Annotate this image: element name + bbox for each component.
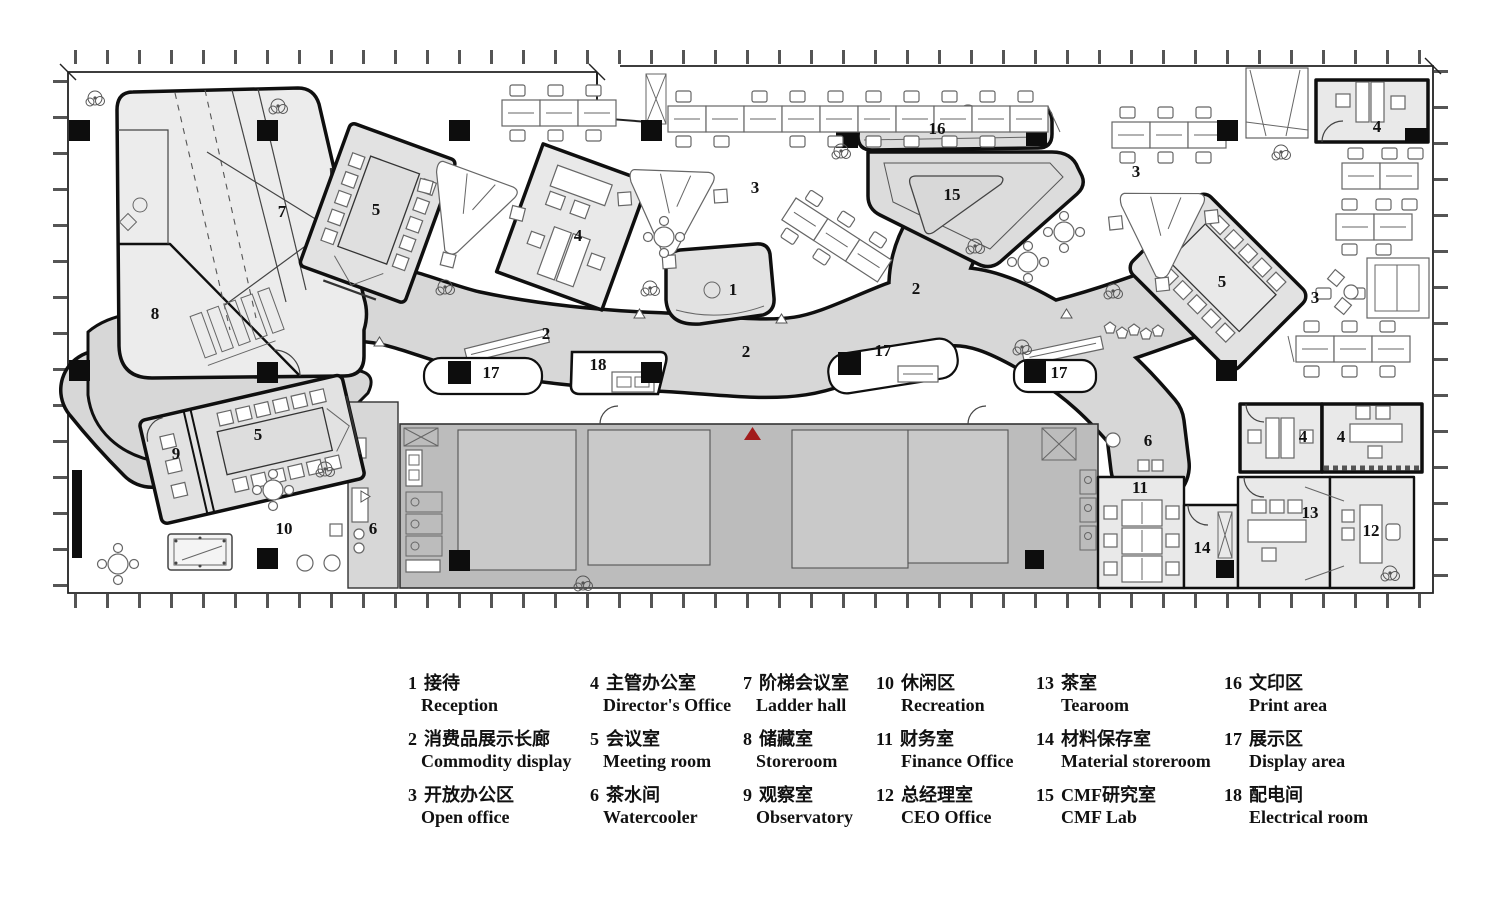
desk-bench — [1112, 107, 1226, 163]
legend-entry-english: Open office — [421, 806, 590, 828]
pool-table — [168, 534, 232, 570]
legend-entry-title: 6茶水间 — [590, 784, 743, 806]
solid-wall-segment — [72, 470, 82, 558]
legend-entry-title: 12总经理室 — [876, 784, 1036, 806]
legend-entry-number: 11 — [876, 729, 893, 749]
legend-entry-number: 12 — [876, 785, 894, 805]
room-label-3: 3 — [1132, 162, 1141, 181]
room-label-5: 5 — [372, 200, 381, 219]
entry-stair — [646, 74, 666, 124]
legend-entry-number: 6 — [590, 785, 599, 805]
room-label-18: 18 — [590, 355, 607, 374]
legend-entry-english: Ladder hall — [756, 694, 876, 716]
service-core — [400, 406, 1098, 588]
legend-entry-16: 16文印区Print area — [1224, 672, 1398, 716]
core-room — [908, 430, 1008, 563]
legend-entry-number: 9 — [743, 785, 752, 805]
legend-entry-number: 1 — [408, 673, 417, 693]
legend-entry-english: Print area — [1249, 694, 1398, 716]
legend-entry-3: 3开放办公区Open office — [408, 784, 590, 828]
legend-entry-title: 9观察室 — [743, 784, 876, 806]
legend-entry-8: 8储藏室Storeroom — [743, 728, 876, 772]
legend-entry-title: 16文印区 — [1224, 672, 1398, 694]
legend-entry-15: 15CMF研究室CMF Lab — [1036, 784, 1224, 828]
legend-entry-number: 15 — [1036, 785, 1054, 805]
legend-entry-18: 18配电间Electrical room — [1224, 784, 1398, 828]
legend-entry-number: 8 — [743, 729, 752, 749]
legend-entry-english: Commodity display — [421, 750, 590, 772]
legend-entry-english: Observatory — [756, 806, 876, 828]
legend-entry-english: Finance Office — [901, 750, 1036, 772]
legend-entry-number: 10 — [876, 673, 894, 693]
legend-entry-number: 3 — [408, 785, 417, 805]
desk-bench — [1342, 148, 1423, 189]
floor-plan-page: { "plan": { "marker": {"name": "entrance… — [0, 0, 1500, 907]
room-label-14: 14 — [1194, 538, 1212, 557]
legend-entry-title: 17展示区 — [1224, 728, 1398, 750]
legend-entry-title: 3开放办公区 — [408, 784, 590, 806]
room-label-9: 9 — [172, 444, 181, 463]
legend-column: 13茶室Tearoom14材料保存室Material storeroom15CM… — [1036, 672, 1224, 840]
core-room — [792, 430, 908, 568]
room-label-11: 11 — [1132, 478, 1148, 497]
legend-entry-5: 5会议室Meeting room — [590, 728, 743, 772]
core-room — [588, 430, 710, 565]
legend-entry-9: 9观察室Observatory — [743, 784, 876, 828]
room-material-storeroom-14 — [1184, 505, 1238, 588]
room-label-4: 4 — [1337, 427, 1346, 446]
room-label-15: 15 — [944, 185, 961, 204]
legend-entry-chinese: 消费品展示长廊 — [424, 729, 550, 749]
room-label-6: 6 — [369, 519, 378, 538]
legend-entry-english: Meeting room — [603, 750, 743, 772]
room-label-10: 10 — [276, 519, 293, 538]
legend-entry-number: 7 — [743, 673, 752, 693]
legend-entry-chinese: CMF研究室 — [1061, 785, 1156, 805]
legend-entry-title: 5会议室 — [590, 728, 743, 750]
round-table — [98, 544, 139, 585]
legend-entry-1: 1接待Reception — [408, 672, 590, 716]
legend-column: 4主管办公室Director's Office5会议室Meeting room6… — [590, 672, 743, 840]
legend-entry-chinese: 开放办公区 — [424, 785, 514, 805]
legend-entry-title: 2消费品展示长廊 — [408, 728, 590, 750]
legend-entry-number: 18 — [1224, 785, 1242, 805]
legend-entry-number: 13 — [1036, 673, 1054, 693]
room-label-7: 7 — [278, 202, 287, 221]
desk-bench — [1288, 321, 1410, 377]
room-reception-1 — [666, 244, 774, 324]
legend-entry-title: 18配电间 — [1224, 784, 1398, 806]
legend-entry-13: 13茶室Tearoom — [1036, 672, 1224, 716]
core-room — [458, 430, 576, 570]
legend-entry-12: 12总经理室CEO Office — [876, 784, 1036, 828]
legend-entry-number: 4 — [590, 673, 599, 693]
legend-entry-17: 17展示区Display area — [1224, 728, 1398, 772]
room-label-8: 8 — [151, 304, 160, 323]
room-label-12: 12 — [1363, 521, 1380, 540]
room-label-16: 16 — [929, 119, 946, 138]
legend-entry-title: 1接待 — [408, 672, 590, 694]
legend-entry-number: 14 — [1036, 729, 1054, 749]
room-label-2: 2 — [742, 342, 751, 361]
stair-vestibule — [1246, 68, 1308, 138]
legend-entry-2: 2消费品展示长廊Commodity display — [408, 728, 590, 772]
room-label-13: 13 — [1302, 503, 1319, 522]
room-label-5: 5 — [1218, 272, 1227, 291]
legend-entry-chinese: 文印区 — [1249, 673, 1303, 693]
legend-entry-english: Material storeroom — [1061, 750, 1224, 772]
door-arc — [968, 406, 986, 424]
legend-entry-chinese: 茶室 — [1061, 673, 1097, 693]
room-label-2: 2 — [542, 324, 551, 343]
desk-bench — [502, 85, 616, 141]
legend-entry-chinese: 储藏室 — [759, 729, 813, 749]
room-label-17: 17 — [1051, 363, 1069, 382]
legend-entry-chinese: 观察室 — [759, 785, 813, 805]
legend-entry-english: Tearoom — [1061, 694, 1224, 716]
room-label-4: 4 — [574, 226, 583, 245]
legend-entry-english: Director's Office — [603, 694, 743, 716]
legend-entry-6: 6茶水间Watercooler — [590, 784, 743, 828]
legend-entry-chinese: 主管办公室 — [606, 673, 696, 693]
legend-entry-title: 7阶梯会议室 — [743, 672, 876, 694]
legend-entry-title: 11财务室 — [876, 728, 1036, 750]
room-label-1: 1 — [729, 280, 738, 299]
floor-plan-drawing: 1222333444455566789101112131415161717171… — [0, 0, 1500, 645]
legend-column: 16文印区Print area17展示区Display area18配电间Ele… — [1224, 672, 1398, 840]
room-label-6: 6 — [1144, 431, 1153, 450]
legend-entry-title: 4主管办公室 — [590, 672, 743, 694]
legend-entry-chinese: 总经理室 — [901, 785, 973, 805]
room-director-4-mid — [497, 144, 649, 310]
legend-entry-english: Watercooler — [603, 806, 743, 828]
legend-entry-english: Reception — [421, 694, 590, 716]
legend-entry-chinese: 展示区 — [1249, 729, 1303, 749]
legend-entry-english: Display area — [1249, 750, 1398, 772]
legend-column: 10休闲区Recreation11财务室Finance Office12总经理室… — [876, 672, 1036, 840]
desk-bench — [1336, 199, 1417, 255]
room-label-3: 3 — [751, 178, 760, 197]
legend-entry-4: 4主管办公室Director's Office — [590, 672, 743, 716]
room-label-17: 17 — [875, 341, 893, 360]
legend-entry-number: 16 — [1224, 673, 1242, 693]
legend-column: 1接待Reception2消费品展示长廊Commodity display3开放… — [408, 672, 590, 840]
room-label-4: 4 — [1299, 427, 1308, 446]
legend-entry-number: 5 — [590, 729, 599, 749]
legend-entry-chinese: 茶水间 — [606, 785, 660, 805]
legend-column: 7阶梯会议室Ladder hall8储藏室Storeroom9观察室Observ… — [743, 672, 876, 840]
legend-entry-chinese: 会议室 — [606, 729, 660, 749]
legend-entry-title: 10休闲区 — [876, 672, 1036, 694]
legend-entry-chinese: 休闲区 — [901, 673, 955, 693]
legend-entry-title: 8储藏室 — [743, 728, 876, 750]
legend-entry-english: Electrical room — [1249, 806, 1398, 828]
room-label-4: 4 — [1373, 117, 1382, 136]
legend-entry-english: Recreation — [901, 694, 1036, 716]
legend-entry-7: 7阶梯会议室Ladder hall — [743, 672, 876, 716]
legend-entry-chinese: 接待 — [424, 673, 460, 693]
legend-entry-10: 10休闲区Recreation — [876, 672, 1036, 716]
legend-entry-number: 2 — [408, 729, 417, 749]
legend-entry-chinese: 阶梯会议室 — [759, 673, 849, 693]
legend-entry-number: 17 — [1224, 729, 1242, 749]
legend-entry-chinese: 材料保存室 — [1061, 729, 1151, 749]
legend-entry-11: 11财务室Finance Office — [876, 728, 1036, 772]
legend-entry-english: CMF Lab — [1061, 806, 1224, 828]
room-tearoom-13 — [1238, 477, 1330, 588]
legend-entry-chinese: 配电间 — [1249, 785, 1303, 805]
room-director-4c — [1240, 404, 1322, 472]
legend-entry-english: Storeroom — [756, 750, 876, 772]
booth-sofa — [1367, 258, 1429, 318]
legend-entry-14: 14材料保存室Material storeroom — [1036, 728, 1224, 772]
room-label-3: 3 — [1311, 288, 1320, 307]
room-label-17: 17 — [483, 363, 501, 382]
legend-entry-title: 13茶室 — [1036, 672, 1224, 694]
door-arc — [600, 406, 618, 424]
legend: 1接待Reception2消费品展示长廊Commodity display3开放… — [408, 672, 1398, 840]
room-label-2: 2 — [912, 279, 921, 298]
legend-entry-title: 14材料保存室 — [1036, 728, 1224, 750]
legend-entry-english: CEO Office — [901, 806, 1036, 828]
room-label-5: 5 — [254, 425, 263, 444]
legend-entry-chinese: 财务室 — [900, 729, 954, 749]
legend-entry-title: 15CMF研究室 — [1036, 784, 1224, 806]
